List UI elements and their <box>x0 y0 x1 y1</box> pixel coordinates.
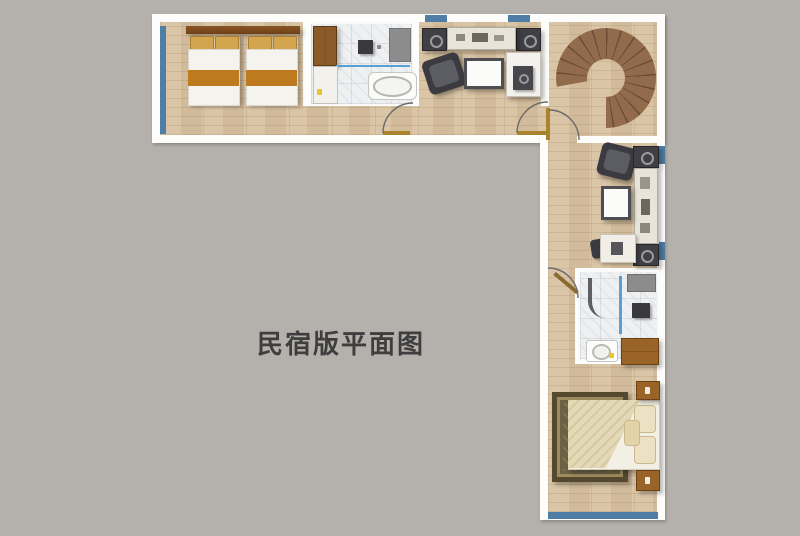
cabinet-accent <box>317 89 322 95</box>
twin-bed-2 <box>246 34 298 104</box>
bath-bench <box>389 28 411 62</box>
sitting-speaker-top <box>633 146 659 168</box>
wall-stair-bottom <box>577 136 657 143</box>
bathroom2-cabinet <box>621 338 659 365</box>
twin-bed-headboard <box>186 26 300 34</box>
window-left <box>160 26 166 134</box>
pillow <box>215 36 239 50</box>
console-item <box>641 199 650 215</box>
speaker-cone <box>641 250 654 263</box>
sitting-speaker-bottom <box>633 244 659 266</box>
shower-knob <box>377 45 381 49</box>
wall-hwing-bottom-a <box>152 135 383 143</box>
wall-hwing-bottom-b <box>408 135 517 143</box>
shower-fixture <box>358 40 373 54</box>
window-top-1 <box>425 15 447 22</box>
console-item <box>640 223 650 233</box>
speaker-cone <box>524 35 537 48</box>
vanity-counter <box>627 274 656 292</box>
door-leaf-junction-bottom <box>517 131 548 135</box>
floor-plan-page: { "title": { "text": "民宿版平面图" }, "palett… <box>0 0 800 536</box>
bed-blanket <box>246 70 297 86</box>
toilet <box>586 340 618 362</box>
side-cabinet-item <box>513 66 533 90</box>
shower-glass-divider <box>336 65 410 67</box>
bed-blanket <box>188 70 239 86</box>
bathroom1-wardrobe <box>313 26 337 66</box>
media-console <box>447 27 516 50</box>
bathroom2-glass-divider <box>619 276 622 334</box>
nightstand-handle <box>645 387 650 394</box>
pillow <box>248 36 272 50</box>
nightstand-top <box>636 381 660 400</box>
window-bottom <box>548 512 658 519</box>
pillow <box>273 36 297 50</box>
wall-vwing-left-b <box>540 300 548 512</box>
armchair-seat <box>428 59 460 89</box>
sitting-side-console <box>634 168 658 244</box>
floor-plan <box>0 0 800 536</box>
armchair-seat <box>603 148 631 174</box>
speaker-cone <box>430 35 443 48</box>
bathroom1-cabinet <box>313 66 338 104</box>
console-item <box>640 177 650 189</box>
wall-bed1-bath1 <box>303 22 311 106</box>
desk-item <box>611 242 623 255</box>
desk <box>600 234 636 263</box>
item-dial <box>519 74 529 84</box>
wall-living-stair <box>541 22 549 106</box>
door-leaf-junction-side <box>546 108 550 140</box>
bed-cushion <box>624 420 640 446</box>
nightstand-bottom <box>636 470 660 491</box>
pillow <box>190 36 214 50</box>
toilet-bowl <box>592 344 611 360</box>
sitting-coffee-table <box>601 186 631 220</box>
media-speaker-left <box>422 28 447 51</box>
speaker-cone <box>641 152 654 165</box>
nightstand-handle <box>645 477 650 484</box>
window-right-2 <box>659 242 665 260</box>
console-item <box>494 35 504 41</box>
bathtub-basin <box>373 76 412 97</box>
window-right-1 <box>659 146 665 164</box>
toilet-accent <box>609 353 614 358</box>
wall-vwing-left-a <box>540 135 548 267</box>
vanity-sink <box>632 303 650 318</box>
living-coffee-table <box>464 58 504 89</box>
console-item <box>456 34 465 41</box>
media-speaker-right <box>516 28 541 51</box>
console-item <box>472 33 488 42</box>
plan-title: 民宿版平面图 <box>257 324 425 361</box>
door-leaf-bathroom1 <box>383 131 410 135</box>
window-top-2 <box>508 15 530 22</box>
twin-bed-1 <box>188 34 240 104</box>
bathtub <box>368 72 417 100</box>
